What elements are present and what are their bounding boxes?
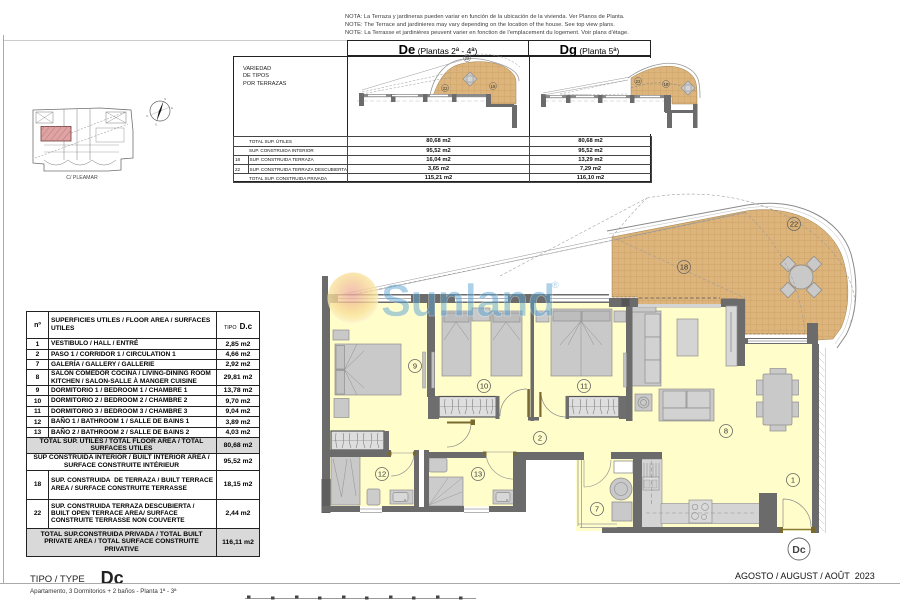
svg-text:Sunland: Sunland: [381, 275, 555, 326]
svg-text:O: O: [146, 114, 149, 118]
svg-text:8: 8: [724, 427, 728, 436]
svg-text:®: ®: [552, 280, 559, 290]
svg-text:22: 22: [635, 79, 641, 84]
svg-text:10: 10: [480, 382, 488, 391]
svg-text:9: 9: [413, 362, 417, 371]
svg-text:2: 2: [538, 434, 542, 443]
svg-text:22: 22: [464, 56, 470, 61]
svg-text:N: N: [164, 97, 166, 101]
svg-text:11: 11: [580, 382, 588, 391]
svg-text:7: 7: [595, 505, 599, 514]
svg-text:18: 18: [663, 82, 669, 87]
svg-text:S: S: [155, 123, 157, 127]
svg-text:13: 13: [474, 470, 482, 479]
svg-text:C/ PLEAMAR: C/ PLEAMAR: [66, 175, 98, 181]
svg-text:22: 22: [442, 86, 448, 91]
svg-text:E: E: [171, 106, 173, 110]
svg-text:22: 22: [790, 220, 798, 229]
svg-text:12: 12: [378, 470, 386, 479]
svg-text:Dc: Dc: [792, 544, 806, 556]
svg-text:18: 18: [680, 263, 688, 272]
svg-text:1: 1: [791, 476, 795, 485]
svg-text:18: 18: [490, 84, 496, 89]
